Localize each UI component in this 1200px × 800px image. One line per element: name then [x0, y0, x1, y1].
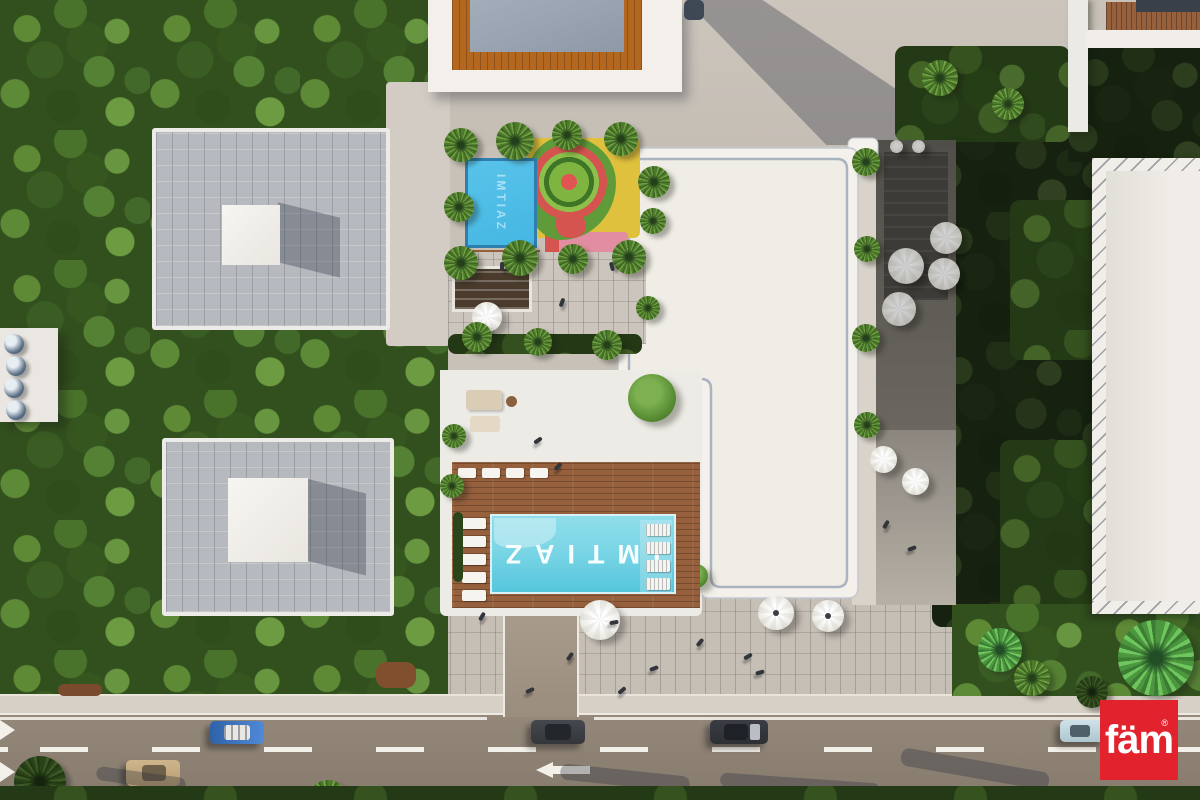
- palm-tree: [558, 244, 588, 274]
- pool-lounger: [482, 468, 500, 478]
- merge-chevron: [0, 762, 15, 782]
- topright-building-band: [1086, 30, 1200, 48]
- playground-red-slide: [556, 212, 586, 238]
- poolside-plants: [453, 512, 463, 582]
- swimming-pool: IMTIAZ: [490, 514, 676, 594]
- merge-chevron: [0, 720, 15, 740]
- cafe-table: [912, 140, 925, 153]
- car-blue-convertible: [210, 721, 264, 744]
- palm-tree: [852, 148, 880, 176]
- palm-tree: [496, 122, 534, 160]
- pool-lounger: [462, 536, 486, 547]
- left-turn-arrow-head: [536, 762, 553, 778]
- palm-tree: [612, 240, 646, 274]
- seating-mat: [470, 416, 500, 432]
- seating-mat: [466, 390, 502, 410]
- palm-tree: [852, 324, 880, 352]
- in-pool-lounger: [646, 560, 670, 572]
- in-pool-lounger: [646, 524, 670, 536]
- palm-tree: [440, 474, 464, 498]
- palm-tree: [640, 208, 666, 234]
- rooftop-hvac-unit: [684, 0, 704, 20]
- roof-dome: [6, 400, 26, 420]
- car-black-sedan: [710, 720, 768, 744]
- topright-building-edge: [1068, 0, 1088, 132]
- palm-tree: [854, 412, 880, 438]
- top-building-inner-roof: [470, 0, 624, 52]
- palm-tree: [444, 246, 478, 280]
- in-pool-lounger: [646, 542, 670, 554]
- villa-roof-block: [228, 478, 308, 562]
- fam-logo: fäm ®: [1100, 700, 1178, 780]
- rightedge-parapet: [1092, 601, 1200, 614]
- pool-lounger: [530, 468, 548, 478]
- top-pavement-tree-cluster: [895, 46, 1070, 142]
- palm-tree: [992, 88, 1024, 120]
- road-edge-line: [0, 717, 487, 720]
- pool-lounger: [458, 468, 476, 478]
- palm-tree: [592, 330, 622, 360]
- palm-tree: [442, 424, 466, 448]
- car-windshield: [750, 724, 760, 740]
- registered-trademark-icon: ®: [1161, 718, 1168, 728]
- palm-tree: [1014, 660, 1050, 696]
- entrance-canopy: [758, 596, 794, 630]
- rightedge-inner-roof: [1106, 171, 1200, 601]
- palm-tree: [502, 240, 538, 276]
- car-window: [1070, 725, 1090, 737]
- palm-tree: [444, 128, 478, 162]
- pool-lounger: [462, 554, 486, 565]
- entrance-canopy: [812, 600, 844, 632]
- round-wood-table: [506, 396, 517, 407]
- rightedge-parapet: [1092, 158, 1200, 171]
- auburn-shrubs: [376, 662, 416, 688]
- topright-inner-roof: [1136, 0, 1200, 12]
- garden-path: [386, 82, 450, 346]
- car-interior: [224, 725, 250, 740]
- person: [500, 262, 504, 271]
- palm-tree: [1118, 620, 1194, 696]
- deck-tree: [628, 374, 676, 422]
- cafe-umbrella: [930, 222, 962, 254]
- car-dark-sedan: [531, 720, 585, 744]
- roof-dome: [4, 334, 24, 354]
- cafe-umbrella: [928, 258, 960, 290]
- lane-dashes-upper: [0, 747, 1200, 752]
- palm-tree: [636, 296, 660, 320]
- palm-tree: [462, 322, 492, 352]
- roof-dome: [4, 378, 24, 398]
- sidewalk: [0, 694, 1200, 715]
- auburn-shrubs: [58, 684, 102, 696]
- villa-roof-block: [222, 205, 280, 265]
- cafe-table: [890, 140, 903, 153]
- terrace-umbrella: [870, 446, 897, 473]
- car-roof: [724, 724, 748, 740]
- kids-pool: IMTIAZ: [465, 158, 537, 248]
- palm-tree: [922, 60, 958, 96]
- cafe-umbrella: [882, 292, 916, 326]
- roof-block-shadow: [306, 479, 366, 576]
- rightedge-parapet: [1092, 158, 1106, 614]
- pool-lounger: [506, 468, 524, 478]
- palm-tree: [444, 192, 474, 222]
- car-roof: [545, 724, 571, 740]
- roof-dome: [6, 356, 26, 376]
- palm-tree: [524, 328, 552, 356]
- right-trees-sunlit-patch: [1000, 440, 1100, 620]
- pool-lounger: [462, 590, 486, 601]
- pool-lounger: [462, 518, 486, 529]
- terrace-umbrella: [902, 468, 929, 495]
- palm-tree: [604, 122, 638, 156]
- palm-tree: [638, 166, 670, 198]
- cafe-umbrella: [888, 248, 924, 284]
- pool-lounger: [462, 572, 486, 583]
- bottom-hedge-strip: [0, 786, 1200, 800]
- right-trees-sunlit-patch: [1010, 200, 1102, 360]
- palm-tree: [854, 236, 880, 262]
- aerial-site-render: IMTIAZ IMTIAZ: [0, 0, 1200, 800]
- palm-tree: [552, 120, 582, 150]
- in-pool-lounger: [646, 578, 670, 590]
- palm-tree: [978, 628, 1022, 672]
